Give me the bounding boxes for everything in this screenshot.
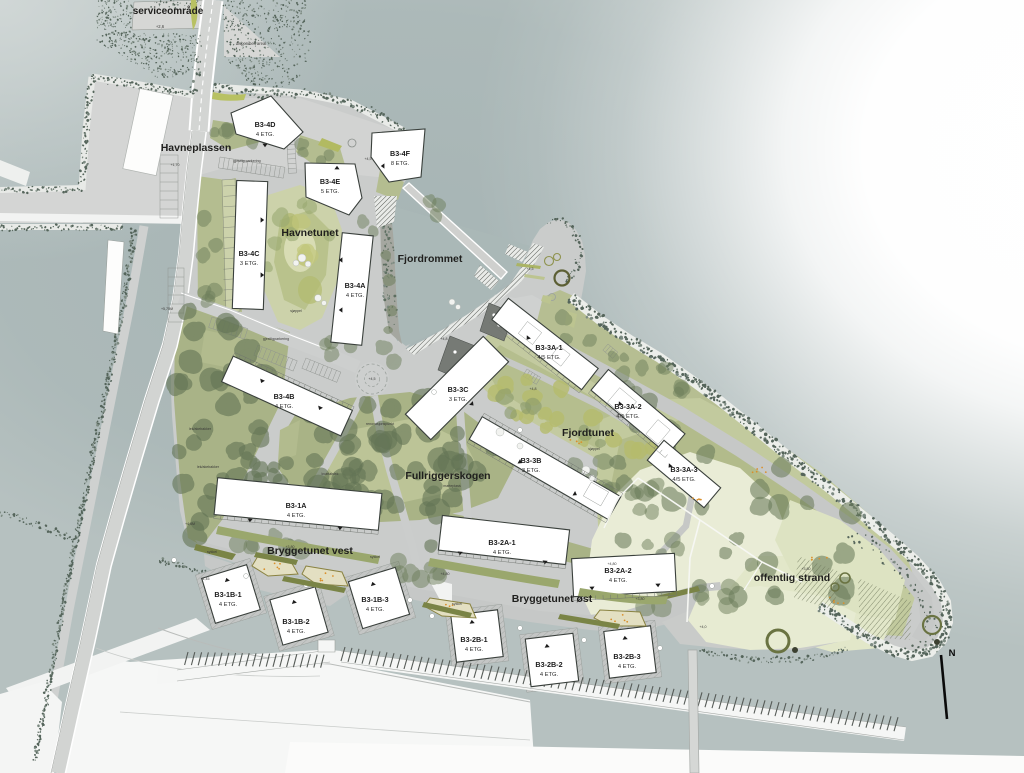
svg-text:Havnetunet: Havnetunet — [281, 227, 339, 239]
svg-text:Havneplassen: Havneplassen — [161, 142, 232, 154]
svg-text:B3-2A-2: B3-2A-2 — [604, 566, 631, 575]
svg-text:Fjordrommet: Fjordrommet — [398, 253, 463, 265]
svg-text:+4,6M: +4,6M — [185, 522, 195, 526]
svg-text:B3-3C: B3-3C — [448, 385, 469, 394]
svg-text:gjestligparkering: gjestligparkering — [263, 337, 289, 341]
svg-text:+4,5: +4,5 — [368, 377, 375, 381]
svg-text:offentlig strand: offentlig strand — [754, 572, 830, 584]
svg-text:B3-4E: B3-4E — [320, 177, 341, 186]
svg-text:+4,5: +4,5 — [364, 157, 371, 161]
svg-text:renovasjonspunkt: renovasjonspunkt — [366, 422, 394, 426]
svg-text:+5,75M: +5,75M — [161, 307, 173, 311]
svg-text:Fullriggerskogen: Fullriggerskogen — [405, 470, 490, 482]
svg-text:sjøppel: sjøppel — [290, 309, 302, 313]
svg-text:B3-4B: B3-4B — [274, 392, 295, 401]
svg-text:lek/akebakker: lek/akebakker — [189, 427, 212, 431]
svg-text:+4,8: +4,8 — [440, 337, 447, 341]
svg-text:B3-3A-2: B3-3A-2 — [614, 402, 641, 411]
svg-text:+4,8: +4,8 — [529, 387, 536, 391]
svg-text:4/5 ETG.: 4/5 ETG. — [537, 355, 561, 361]
svg-text:B3-2B-1: B3-2B-1 — [460, 635, 487, 644]
svg-text:B3-2A-1: B3-2A-1 — [488, 538, 515, 547]
svg-text:4 ETG.: 4 ETG. — [540, 672, 559, 678]
svg-text:4 ETG.: 4 ETG. — [219, 602, 238, 608]
svg-text:+4,80: +4,80 — [607, 562, 616, 566]
svg-text:4/5 ETG.: 4/5 ETG. — [672, 477, 696, 483]
svg-text:3 ETG.: 3 ETG. — [240, 261, 259, 267]
svg-text:+4,0: +4,0 — [699, 625, 706, 629]
svg-text:4 ETG.: 4 ETG. — [287, 629, 306, 635]
svg-text:+4,45: +4,45 — [200, 577, 209, 581]
svg-text:B3-1A: B3-1A — [286, 501, 307, 510]
svg-text:disponibelt areal: disponibelt areal — [236, 41, 267, 46]
svg-text:sjøppel: sjøppel — [588, 447, 600, 451]
svg-text:+3,80: +3,80 — [801, 567, 810, 571]
svg-text:+4,5: +4,5 — [526, 267, 533, 271]
svg-text:B3-3B: B3-3B — [521, 456, 542, 465]
svg-text:kvartalslek: kvartalslek — [322, 472, 339, 476]
svg-text:4 ETG.: 4 ETG. — [493, 550, 512, 556]
svg-text:4 ETG.: 4 ETG. — [618, 664, 637, 670]
svg-text:+1,70: +1,70 — [170, 163, 179, 167]
svg-text:+3,80: +3,80 — [635, 597, 644, 601]
svg-text:B3-2B-3: B3-2B-3 — [613, 652, 640, 661]
svg-text:B3-1B-1: B3-1B-1 — [214, 590, 241, 599]
svg-text:B3-4F: B3-4F — [390, 149, 411, 158]
svg-text:B3-4C: B3-4C — [239, 249, 260, 258]
svg-text:serviceområde: serviceområde — [133, 5, 204, 17]
svg-text:4/5 ETG.: 4/5 ETG. — [616, 414, 640, 420]
svg-text:4 ETG.: 4 ETG. — [366, 607, 385, 613]
svg-text:B3-1B-3: B3-1B-3 — [361, 595, 388, 604]
svg-text:8 ETG.: 8 ETG. — [391, 161, 410, 167]
svg-text:sykkel: sykkel — [207, 550, 217, 554]
svg-text:4 ETG.: 4 ETG. — [346, 293, 365, 299]
svg-text:4 ETG.: 4 ETG. — [275, 404, 294, 410]
svg-text:B3-2B-2: B3-2B-2 — [535, 660, 562, 669]
svg-text:3 ETG.: 3 ETG. — [449, 397, 468, 403]
svg-text:+4,80: +4,80 — [440, 572, 449, 576]
svg-text:3 ETG.: 3 ETG. — [522, 468, 541, 474]
svg-text:B3-4A: B3-4A — [345, 281, 366, 290]
svg-text:lek/akebakker: lek/akebakker — [197, 465, 220, 469]
svg-text:sykkel: sykkel — [370, 555, 380, 559]
svg-text:4 ETG.: 4 ETG. — [465, 647, 484, 653]
svg-text:4 ETG.: 4 ETG. — [609, 578, 628, 584]
svg-text:5 ETG.: 5 ETG. — [321, 189, 340, 195]
svg-text:B3-1B-2: B3-1B-2 — [282, 617, 309, 626]
svg-text:B3-3A-1: B3-3A-1 — [535, 343, 562, 352]
svg-text:Fjordtunet: Fjordtunet — [562, 427, 614, 439]
svg-text:Bryggetunet øst: Bryggetunet øst — [512, 593, 593, 605]
svg-text:gjestlig parkering: gjestlig parkering — [233, 159, 260, 163]
svg-text:+2,6: +2,6 — [156, 24, 165, 29]
svg-text:+3,80: +3,80 — [285, 545, 294, 549]
svg-text:4 ETG.: 4 ETG. — [256, 132, 275, 138]
svg-text:Bryggetunet vest: Bryggetunet vest — [267, 545, 353, 557]
svg-text:N: N — [949, 648, 956, 659]
svg-text:4 ETG.: 4 ETG. — [287, 513, 306, 519]
svg-text:B3-3A-3: B3-3A-3 — [670, 465, 697, 474]
svg-text:marteplass: marteplass — [443, 484, 461, 488]
svg-text:B3-4D: B3-4D — [255, 120, 276, 129]
svg-text:sykkel: sykkel — [452, 602, 462, 606]
